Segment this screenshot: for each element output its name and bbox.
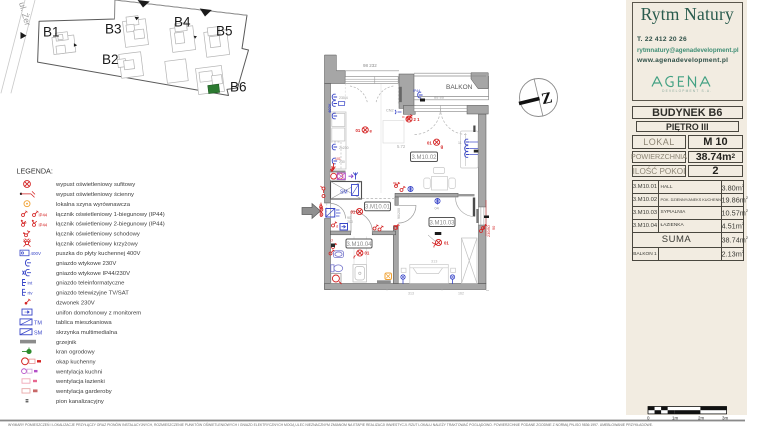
svg-text:BALKON: BALKON xyxy=(446,84,473,91)
svg-text:unifon domofonowy z monitorem: unifon domofonowy z monitorem xyxy=(56,310,141,316)
svg-text:WYMIARY POMIESZCZEŃ I LOKALIZA: WYMIARY POMIESZCZEŃ I LOKALIZACJE PRZYŁĄ… xyxy=(8,422,653,427)
svg-text:313: 313 xyxy=(408,292,414,296)
svg-text:wentylacja garderoby: wentylacja garderoby xyxy=(55,389,112,395)
svg-text:łącznik oświetleniowy krzyżowy: łącznik oświetleniowy krzyżowy xyxy=(56,241,138,247)
svg-text:Z: Z xyxy=(540,89,554,108)
svg-text:IP44: IP44 xyxy=(39,222,48,227)
svg-text:04: 04 xyxy=(435,207,439,211)
svg-text:2x230: 2x230 xyxy=(339,146,349,150)
svg-text:łącznik oświetleniowy schodowy: łącznik oświetleniowy schodowy xyxy=(56,231,140,237)
svg-text:wypust oświetleniowy sufitowy: wypust oświetleniowy sufitowy xyxy=(55,182,135,188)
svg-text:int: int xyxy=(28,281,34,286)
svg-text:gniazdo wtykowe 230V: gniazdo wtykowe 230V xyxy=(56,261,116,267)
svg-text:d: d xyxy=(336,225,338,229)
svg-text:400V: 400V xyxy=(31,251,42,256)
svg-text:wypust oświetleniowy ścienny: wypust oświetleniowy ścienny xyxy=(55,192,134,198)
svg-text:200: 200 xyxy=(347,220,353,224)
svg-text:pion kanalizacyjny: pion kanalizacyjny xyxy=(56,399,104,405)
svg-text:LEGENDA:: LEGENDA: xyxy=(17,167,53,176)
svg-text:B5: B5 xyxy=(216,24,233,39)
svg-text:230/4: 230/4 xyxy=(339,96,348,100)
svg-text:CN2: CN2 xyxy=(386,109,394,113)
svg-text:3.M10.03: 3.M10.03 xyxy=(429,220,455,226)
svg-text:IP44: IP44 xyxy=(39,213,48,218)
svg-text:kran ogrodowy: kran ogrodowy xyxy=(56,350,95,356)
svg-text:01: 01 xyxy=(356,128,361,133)
svg-text:SM: SM xyxy=(340,190,348,196)
svg-text:3.M10.04: 3.M10.04 xyxy=(346,242,372,248)
svg-text:łącznik oświetleniowy 2-biegun: łącznik oświetleniowy 2-biegunowy (IP44) xyxy=(56,222,165,228)
svg-text:98 232: 98 232 xyxy=(363,63,377,68)
svg-text:d: d xyxy=(331,239,333,243)
svg-text:90/200: 90/200 xyxy=(397,208,401,219)
svg-text:01: 01 xyxy=(365,251,370,256)
svg-text:230: 230 xyxy=(339,160,345,164)
svg-text:lokalna szyna wyrównawcza: lokalna szyna wyrównawcza xyxy=(56,202,131,208)
svg-text:400V: 400V xyxy=(327,103,332,113)
svg-text:dzwonek 230V: dzwonek 230V xyxy=(56,300,95,306)
svg-text:g: g xyxy=(441,144,444,149)
svg-text:TM: TM xyxy=(34,320,42,326)
svg-text:okap kuchenny: okap kuchenny xyxy=(56,360,96,366)
svg-text:313: 313 xyxy=(431,260,437,264)
svg-text:rtv: rtv xyxy=(28,290,34,295)
svg-text:gniazdo telewizyjne TV/SAT: gniazdo telewizyjne TV/SAT xyxy=(56,291,129,297)
svg-text:B4: B4 xyxy=(174,15,191,30)
svg-text:B3: B3 xyxy=(105,22,122,37)
svg-text:wentylacja łazienki: wentylacja łazienki xyxy=(55,379,105,385)
svg-text:01: 01 xyxy=(351,210,356,215)
svg-text:B2: B2 xyxy=(102,52,119,67)
svg-text:3.M10.01: 3.M10.01 xyxy=(365,205,391,211)
svg-text:IP44: IP44 xyxy=(413,89,420,93)
svg-text:01: 01 xyxy=(427,140,432,145)
svg-text:230/80: 230/80 xyxy=(487,225,491,237)
svg-text:B6: B6 xyxy=(230,80,247,95)
svg-text:tablica mieszkaniowa: tablica mieszkaniowa xyxy=(56,320,112,326)
svg-text:gniazdo wtykowe IP44/230V: gniazdo wtykowe IP44/230V xyxy=(56,271,130,277)
svg-text:gniazdo teleinformatyczne: gniazdo teleinformatyczne xyxy=(56,281,125,287)
svg-text:04: 04 xyxy=(408,195,412,199)
svg-text:01: 01 xyxy=(444,241,449,246)
svg-text:SM: SM xyxy=(34,330,43,336)
svg-text:3.M10.02: 3.M10.02 xyxy=(411,155,437,161)
svg-text:11: 11 xyxy=(458,141,462,145)
svg-text:2 1: 2 1 xyxy=(414,117,421,122)
svg-text:162: 162 xyxy=(458,292,464,296)
svg-text:grzejnik: grzejnik xyxy=(56,340,76,346)
svg-text:5.72: 5.72 xyxy=(397,144,406,149)
svg-text:puszka do płyty kuchennej 400V: puszka do płyty kuchennej 400V xyxy=(56,251,141,257)
svg-text:e: e xyxy=(370,128,373,133)
svg-text:90: 90 xyxy=(492,226,496,230)
svg-text:B1: B1 xyxy=(43,25,60,40)
svg-text:skrzynka multimedialna: skrzynka multimedialna xyxy=(56,330,118,336)
svg-text:88 86: 88 86 xyxy=(434,95,445,100)
svg-text:łącznik oświetleniowy 1-biegun: łącznik oświetleniowy 1-biegunowy (IP44) xyxy=(56,212,165,218)
svg-text:wentylacja kuchni: wentylacja kuchni xyxy=(55,369,102,375)
